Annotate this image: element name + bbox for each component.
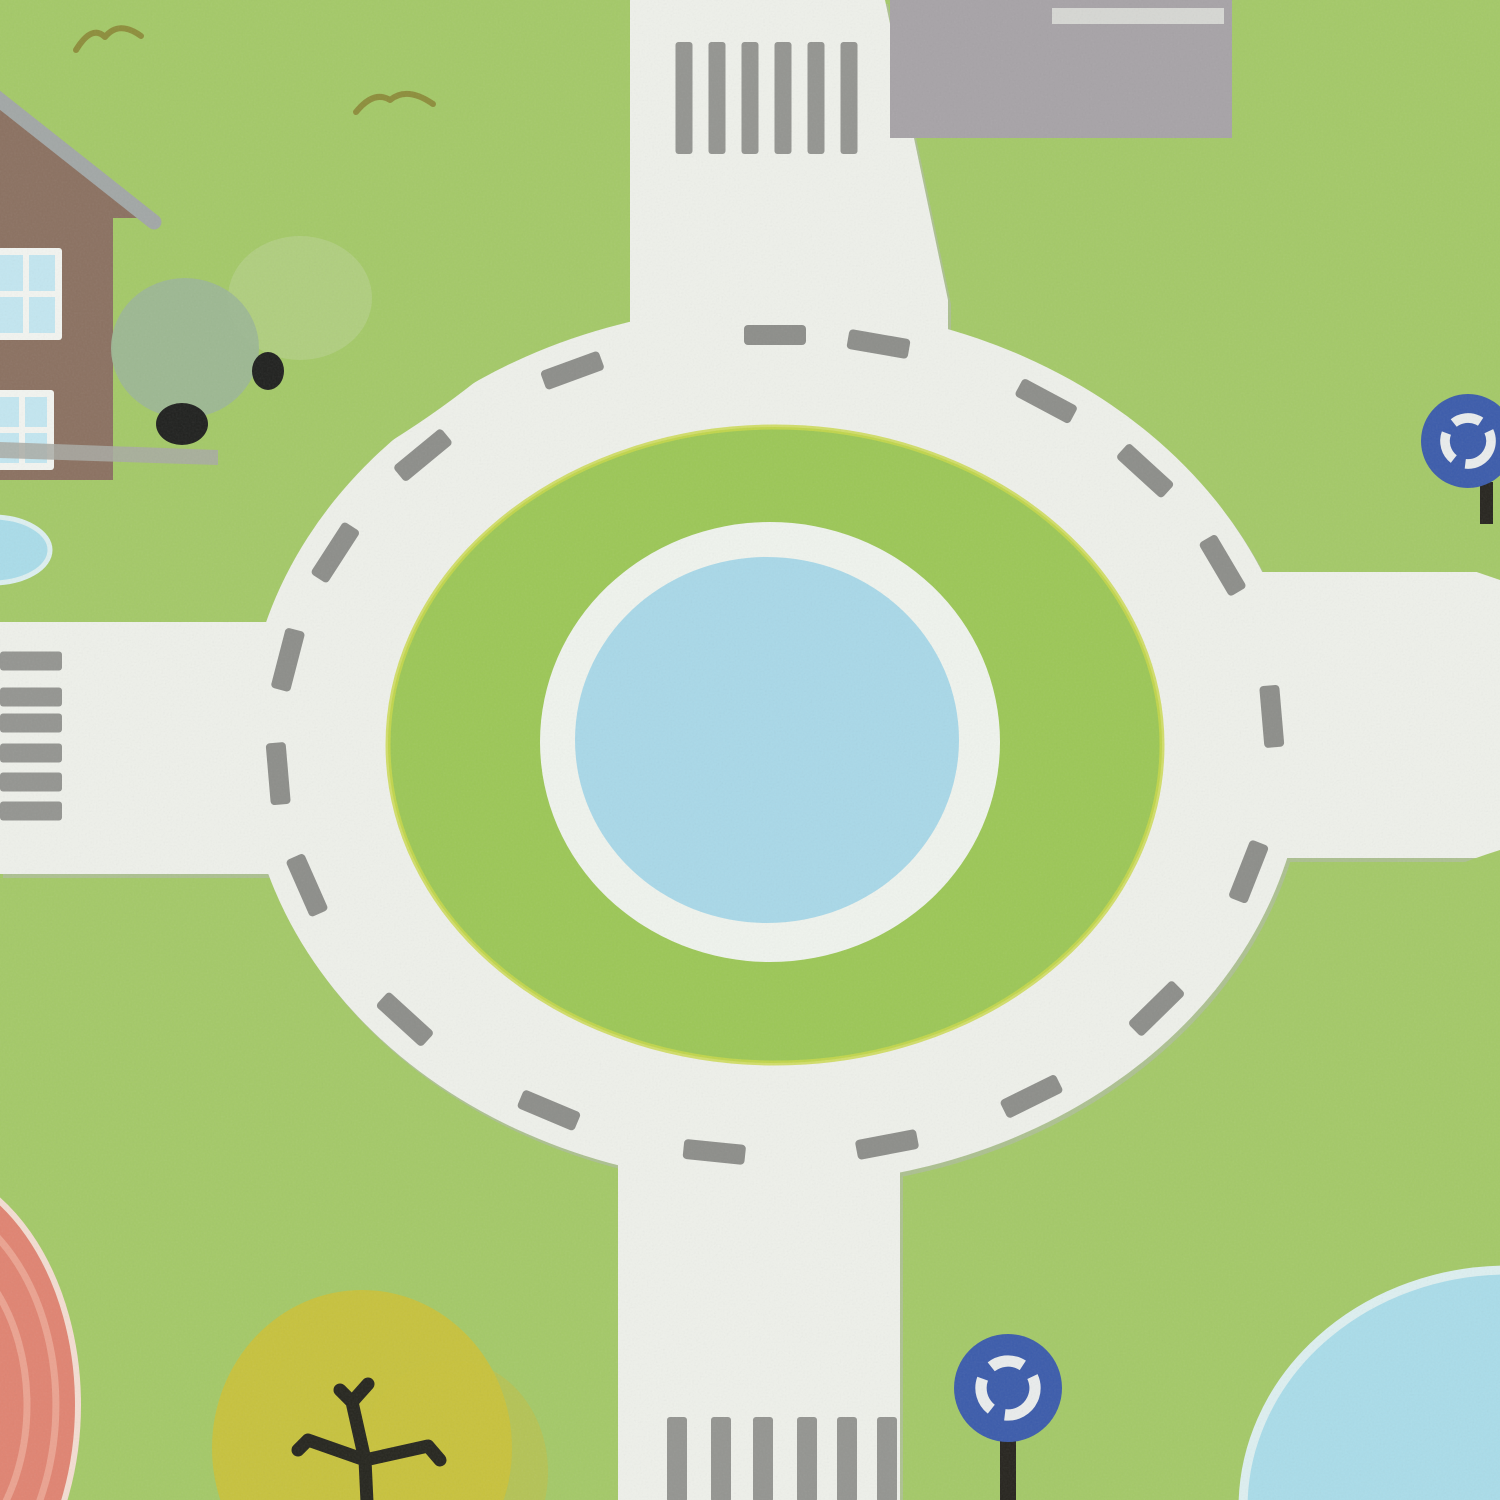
- rug-photo-stage: [0, 0, 1500, 1500]
- carpet-texture-overlay: [0, 0, 1500, 1500]
- play-rug-scene: [0, 0, 1500, 1500]
